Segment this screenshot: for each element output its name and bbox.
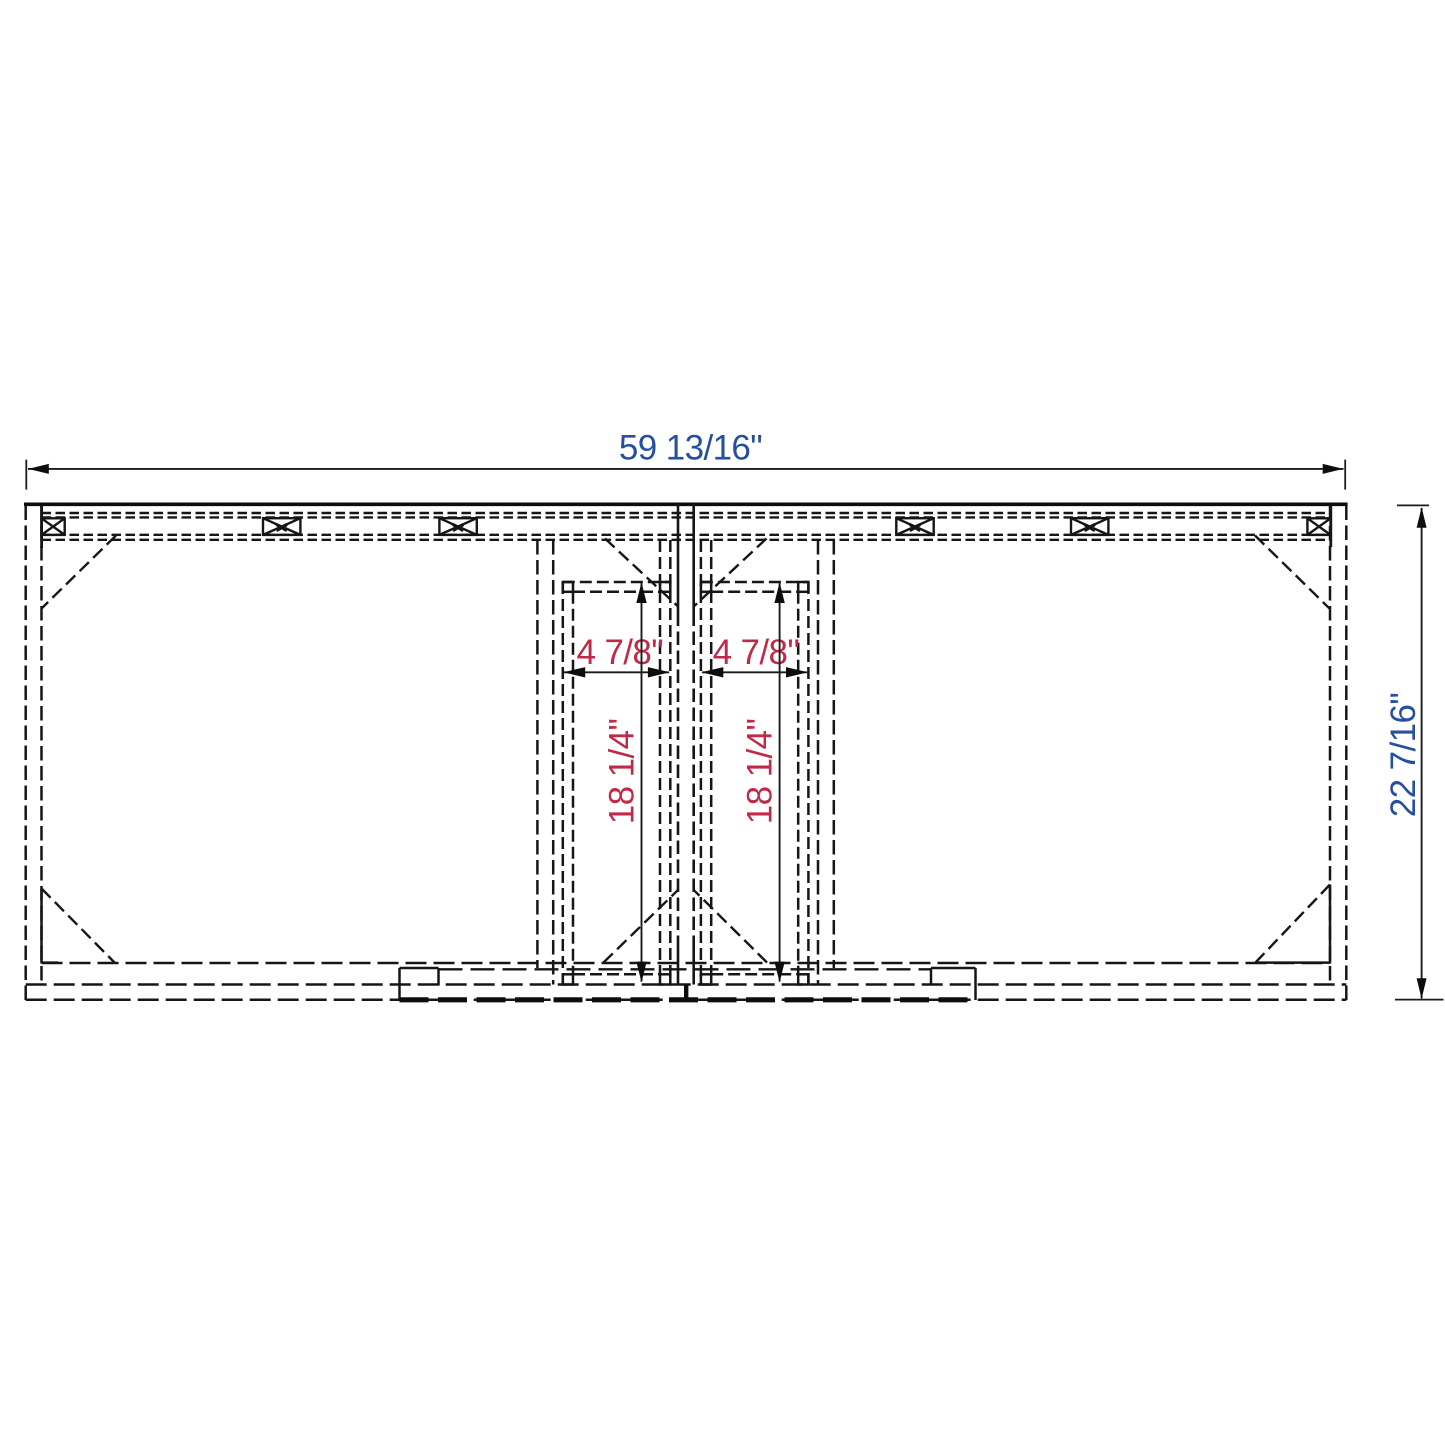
- svg-text:4 7/8": 4 7/8": [576, 633, 663, 672]
- svg-text:4 7/8": 4 7/8": [713, 633, 800, 672]
- svg-text:22 7/16": 22 7/16": [1384, 693, 1423, 817]
- svg-text:59 13/16": 59 13/16": [619, 429, 762, 468]
- svg-text:18 1/4": 18 1/4": [603, 719, 642, 825]
- svg-text:18 1/4": 18 1/4": [741, 719, 780, 825]
